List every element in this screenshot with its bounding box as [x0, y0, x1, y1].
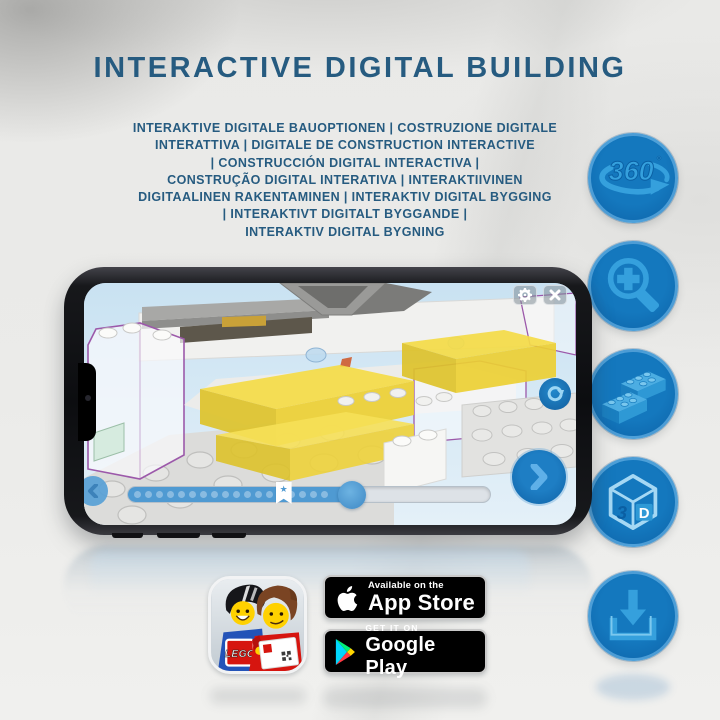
- progress-dot: [200, 491, 207, 498]
- progress-dot: [222, 491, 229, 498]
- rotate-model-button[interactable]: [539, 378, 571, 410]
- 3d-view-icon: 3 D: [591, 460, 675, 544]
- build-progress-slider[interactable]: ★: [127, 486, 491, 503]
- chevron-left-icon: [87, 484, 99, 498]
- chevron-right-icon: [528, 464, 550, 490]
- page-title: INTERACTIVE DIGITAL BUILDING: [0, 52, 720, 85]
- building-bricks-icon: [591, 352, 675, 436]
- lego-minifigures-illustration: LEGO: [211, 579, 304, 671]
- subtitle-translations: INTERAKTIVE DIGITALE BAUOPTIONEN | COSTR…: [75, 120, 615, 241]
- app-store-badge[interactable]: Available on the App Store: [323, 575, 487, 620]
- badge-reflection: [323, 688, 487, 708]
- close-button[interactable]: [543, 285, 567, 305]
- download-circle-reflection: [596, 674, 670, 700]
- phone-camera-dot: [85, 395, 91, 401]
- phone-mockup: ★: [64, 267, 592, 535]
- svg-text:°: °: [656, 153, 661, 168]
- phone-side-button: [212, 533, 246, 538]
- app-store-name: App Store: [368, 591, 475, 615]
- gear-icon: [518, 288, 532, 302]
- lego-app-icon[interactable]: LEGO: [208, 576, 307, 674]
- lego-icon-reflection: [210, 688, 306, 704]
- google-play-name: Google Play: [365, 634, 475, 680]
- download-icon: [591, 574, 675, 658]
- progress-dot: [266, 491, 273, 498]
- close-icon: [549, 289, 561, 301]
- subtitle-line: INTERAKTIVE DIGITALE BAUOPTIONEN | COSTR…: [75, 120, 615, 137]
- google-play-icon: [334, 638, 356, 666]
- progress-dots: [134, 487, 328, 502]
- poster-canvas: INTERACTIVE DIGITAL BUILDING INTERAKTIVE…: [0, 0, 720, 720]
- feature-download[interactable]: [588, 571, 678, 661]
- marker-star-icon: ★: [280, 484, 288, 494]
- rotate-icon: [545, 384, 565, 404]
- subtitle-line: | CONSTRUCCIÓN DIGITAL INTERACTIVA |: [75, 155, 615, 172]
- subtitle-line: DIGITAALINEN RAKENTAMINEN | INTERAKTIV D…: [75, 189, 615, 206]
- progress-dot: [310, 491, 317, 498]
- progress-dot: [178, 491, 185, 498]
- subtitle-line: | INTERAKTIVT DIGITALT BYGGANDE |: [75, 206, 615, 223]
- apple-icon: [334, 583, 359, 613]
- feature-3d-view[interactable]: 3 D: [588, 457, 678, 547]
- progress-dot: [167, 491, 174, 498]
- google-play-badge[interactable]: GET IT ON Google Play: [323, 629, 487, 674]
- settings-button[interactable]: [513, 285, 537, 305]
- progress-dot: [299, 491, 306, 498]
- subtitle-line: INTERAKTIV DIGITAL BYGNING: [75, 224, 615, 241]
- svg-text:LEGO: LEGO: [225, 649, 255, 660]
- google-play-tagline: GET IT ON: [365, 623, 475, 634]
- zoom-in-icon: [591, 244, 675, 328]
- svg-text:360: 360: [609, 156, 654, 186]
- phone-notch: [78, 363, 96, 441]
- progress-dot: [145, 491, 152, 498]
- progress-dot: [211, 491, 218, 498]
- feature-360-rotation[interactable]: 360 °: [588, 133, 678, 223]
- subtitle-line: INTERATTIVA | DIGITALE DE CONSTRUCTION I…: [75, 137, 615, 154]
- next-step-button[interactable]: [512, 450, 566, 504]
- 360-rotation-icon: 360 °: [591, 136, 675, 220]
- progress-dot: [321, 491, 328, 498]
- svg-text:3: 3: [617, 502, 628, 523]
- svg-text:D: D: [639, 505, 650, 522]
- progress-dot: [233, 491, 240, 498]
- feature-building-bricks[interactable]: [588, 349, 678, 439]
- progress-dot: [134, 491, 141, 498]
- progress-dot: [255, 491, 262, 498]
- progress-dot: [156, 491, 163, 498]
- subtitle-line: CONSTRUÇÃO DIGITAL INTERATIVA | INTERAKT…: [75, 172, 615, 189]
- phone-side-button: [157, 533, 200, 538]
- progress-dot: [244, 491, 251, 498]
- progress-dot: [189, 491, 196, 498]
- feature-zoom-in[interactable]: [588, 241, 678, 331]
- phone-screen: ★: [84, 283, 576, 525]
- phone-side-button: [112, 533, 143, 538]
